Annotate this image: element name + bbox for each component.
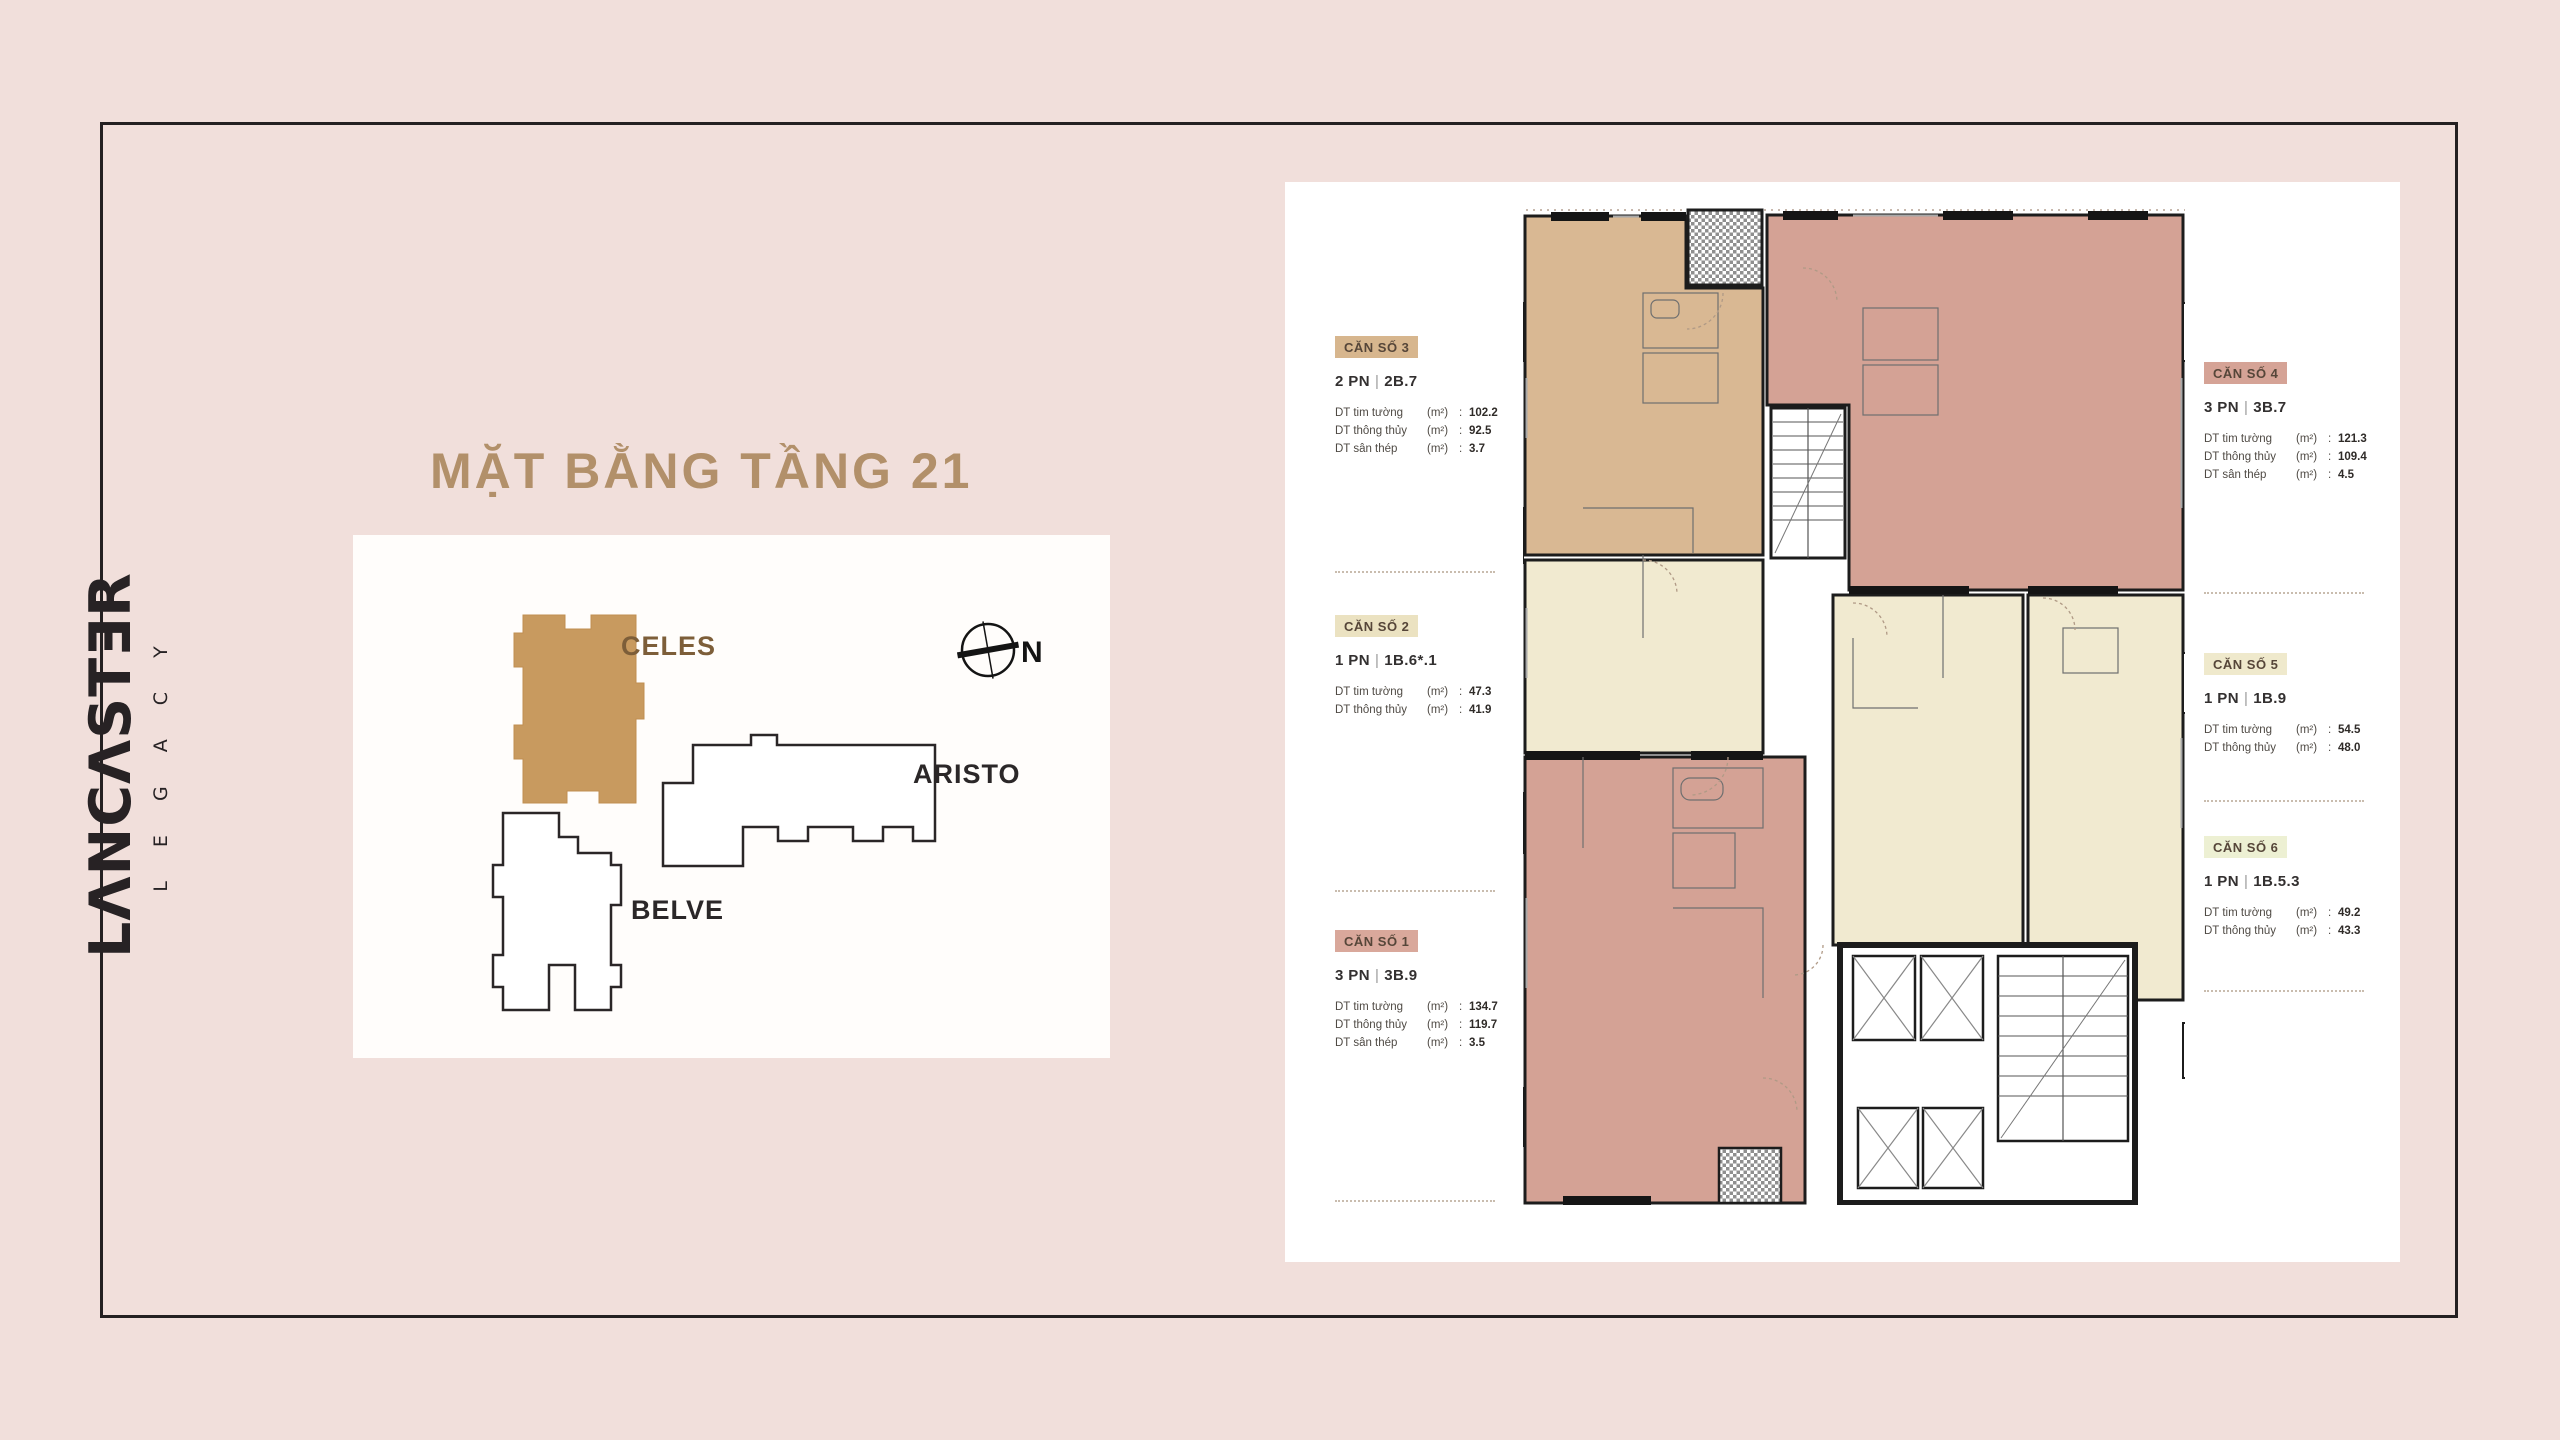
unit-chip: CĂN SỐ 5 (2204, 653, 2287, 675)
unit-code: 2B.7 (1384, 373, 1417, 390)
stat-row: DT thông thủy (m²) : 43.3 (2204, 922, 2389, 940)
stat-value: 119.7 (1469, 1016, 1497, 1034)
unit-type-line: 3 PN|3B.9 (1335, 967, 1520, 984)
stat-value: 102.2 (1469, 404, 1498, 422)
dotted-separator (1335, 890, 1495, 892)
dotted-separator (2204, 592, 2364, 594)
stat-value: 134.7 (1469, 998, 1498, 1016)
stat-name: DT tim tường (1335, 683, 1427, 701)
stat-colon: : (2328, 721, 2338, 739)
building-label-celes: CELES (621, 631, 716, 662)
unit-type-line: 1 PN|1B.9 (2204, 690, 2389, 707)
stat-unit: (m²) (2296, 430, 2328, 448)
stat-unit: (m²) (1427, 701, 1459, 719)
stat-row: DT thông thủy (m²) : 48.0 (2204, 739, 2389, 757)
stat-row: DT sân thép (m²) : 3.7 (1335, 440, 1520, 458)
unit-type-line: 2 PN|2B.7 (1335, 373, 1520, 390)
stat-colon: : (2328, 739, 2338, 757)
stat-value: 41.9 (1469, 701, 1491, 719)
unit-chip: CĂN SỐ 3 (1335, 336, 1418, 358)
unit-code: 1B.9 (2253, 690, 2286, 707)
unit-bedrooms: 2 PN (1335, 373, 1370, 390)
stat-row: DT sân thép (m²) : 3.5 (1335, 1034, 1520, 1052)
stat-colon: : (2328, 922, 2338, 940)
stat-unit: (m²) (1427, 1016, 1459, 1034)
site-plan-box: N CELES ARISTO BELVE (353, 535, 1110, 1058)
separator: | (2239, 399, 2253, 416)
stat-colon: : (2328, 904, 2338, 922)
stat-unit: (m²) (1427, 440, 1459, 458)
brand-logo: LΛNCΛSTƎR L E G A C Y (62, 500, 192, 970)
compass-north-label: N (1021, 636, 1043, 669)
stat-value: 54.5 (2338, 721, 2360, 739)
stat-name: DT sân thép (1335, 440, 1427, 458)
stat-name: DT thông thủy (2204, 922, 2296, 940)
stat-value: 43.3 (2338, 922, 2360, 940)
building-aristo-shape (663, 735, 935, 866)
stat-unit: (m²) (2296, 448, 2328, 466)
building-label-aristo: ARISTO (913, 759, 1021, 790)
site-plan-drawing: N (353, 535, 1110, 1058)
plan-unit-can-so-5 (1833, 595, 2023, 945)
lift-lobby-hatched-top (1688, 210, 1762, 285)
plan-unit-can-so-2 (1525, 560, 1763, 753)
unit-stats: DT tim tường (m²) : 134.7 DT thông thủy … (1335, 998, 1520, 1052)
stat-colon: : (2328, 466, 2338, 484)
stat-name: DT sân thép (1335, 1034, 1427, 1052)
stat-unit: (m²) (1427, 1034, 1459, 1052)
dotted-separator (1335, 1200, 1495, 1202)
dotted-separator (2204, 990, 2364, 992)
unit-info-can-so-2: CĂN SỐ 2 1 PN|1B.6*.1 DT tim tường (m²) … (1335, 615, 1520, 719)
stat-row: DT thông thủy (m²) : 92.5 (1335, 422, 1520, 440)
unit-type-line: 1 PN|1B.6*.1 (1335, 652, 1520, 669)
stat-value: 4.5 (2338, 466, 2354, 484)
stat-unit: (m²) (1427, 404, 1459, 422)
stat-name: DT tim tường (1335, 404, 1427, 422)
lift-lobby-hatched-bottom (1719, 1148, 1781, 1203)
stat-colon: : (2328, 430, 2338, 448)
unit-bedrooms: 3 PN (1335, 967, 1370, 984)
unit-stats: DT tim tường (m²) : 47.3 DT thông thủy (… (1335, 683, 1520, 719)
stat-row: DT thông thủy (m²) : 119.7 (1335, 1016, 1520, 1034)
stat-colon: : (1459, 1034, 1469, 1052)
stat-row: DT tim tường (m²) : 134.7 (1335, 998, 1520, 1016)
unit-chip: CĂN SỐ 2 (1335, 615, 1418, 637)
stat-name: DT tim tường (1335, 998, 1427, 1016)
brochure-page: LΛNCΛSTƎR L E G A C Y MẶT BẰNG TẦNG 21 N (0, 0, 2560, 1440)
stat-unit: (m²) (1427, 683, 1459, 701)
stat-value: 48.0 (2338, 739, 2360, 757)
stat-name: DT thông thủy (2204, 448, 2296, 466)
brand-name: LΛNCΛSTƎR (83, 572, 140, 958)
unit-info-can-so-6: CĂN SỐ 6 1 PN|1B.5.3 DT tim tường (m²) :… (2204, 836, 2389, 940)
unit-info-can-so-4: CĂN SỐ 4 3 PN|3B.7 DT tim tường (m²) : 1… (2204, 362, 2389, 484)
stat-colon: : (1459, 440, 1469, 458)
stat-row: DT tim tường (m²) : 54.5 (2204, 721, 2389, 739)
unit-code: 3B.9 (1384, 967, 1417, 984)
stat-value: 3.5 (1469, 1034, 1485, 1052)
unit-type-line: 1 PN|1B.5.3 (2204, 873, 2389, 890)
brand-logo-rotated: LΛNCΛSTƎR L E G A C Y (67, 555, 187, 975)
stat-value: 109.4 (2338, 448, 2367, 466)
unit-stats: DT tim tường (m²) : 49.2 DT thông thủy (… (2204, 904, 2389, 940)
stat-name: DT tim tường (2204, 430, 2296, 448)
stat-unit: (m²) (2296, 466, 2328, 484)
stat-row: DT tim tường (m²) : 47.3 (1335, 683, 1520, 701)
stat-name: DT thông thủy (1335, 422, 1427, 440)
unit-bedrooms: 1 PN (2204, 690, 2239, 707)
separator: | (1370, 373, 1384, 390)
stat-name: DT tim tường (2204, 721, 2296, 739)
stat-colon: : (1459, 683, 1469, 701)
stat-value: 121.3 (2338, 430, 2367, 448)
stat-value: 49.2 (2338, 904, 2360, 922)
page-title: MẶT BẰNG TẦNG 21 (430, 442, 972, 500)
stat-unit: (m²) (2296, 904, 2328, 922)
unit-info-can-so-1: CĂN SỐ 1 3 PN|3B.9 DT tim tường (m²) : 1… (1335, 930, 1520, 1052)
stat-row: DT thông thủy (m²) : 109.4 (2204, 448, 2389, 466)
building-label-belve: BELVE (631, 895, 724, 926)
stat-colon: : (2328, 448, 2338, 466)
unit-bedrooms: 1 PN (2204, 873, 2239, 890)
separator: | (2239, 690, 2253, 707)
stat-unit: (m²) (1427, 998, 1459, 1016)
dotted-separator (2204, 800, 2364, 802)
stat-unit: (m²) (1427, 422, 1459, 440)
dotted-separator (1335, 571, 1495, 573)
stat-value: 3.7 (1469, 440, 1485, 458)
service-core (1840, 945, 2135, 1203)
unit-stats: DT tim tường (m²) : 102.2 DT thông thủy … (1335, 404, 1520, 458)
separator: | (2239, 873, 2253, 890)
unit-stats: DT tim tường (m²) : 121.3 DT thông thủy … (2204, 430, 2389, 484)
unit-code: 1B.6*.1 (1384, 652, 1437, 669)
stat-name: DT thông thủy (1335, 1016, 1427, 1034)
unit-bedrooms: 3 PN (2204, 399, 2239, 416)
stair-core-top (1771, 408, 1845, 558)
unit-info-can-so-5: CĂN SỐ 5 1 PN|1B.9 DT tim tường (m²) : 5… (2204, 653, 2389, 757)
stat-name: DT tim tường (2204, 904, 2296, 922)
unit-bedrooms: 1 PN (1335, 652, 1370, 669)
stat-unit: (m²) (2296, 739, 2328, 757)
stat-row: DT sân thép (m²) : 4.5 (2204, 466, 2389, 484)
unit-code: 1B.5.3 (2253, 873, 2300, 890)
unit-stats: DT tim tường (m²) : 54.5 DT thông thủy (… (2204, 721, 2389, 757)
stat-colon: : (1459, 404, 1469, 422)
stat-colon: : (1459, 422, 1469, 440)
floor-plan-drawing (1523, 208, 2185, 1205)
stat-colon: : (1459, 998, 1469, 1016)
brand-subname: L E G A C Y (150, 632, 172, 897)
stat-colon: : (1459, 701, 1469, 719)
plan-unit-can-so-6 (2028, 595, 2183, 1000)
stat-row: DT thông thủy (m²) : 41.9 (1335, 701, 1520, 719)
stat-value: 92.5 (1469, 422, 1491, 440)
stat-unit: (m²) (2296, 922, 2328, 940)
unit-chip: CĂN SỐ 6 (2204, 836, 2287, 858)
unit-chip: CĂN SỐ 4 (2204, 362, 2287, 384)
stat-name: DT thông thủy (2204, 739, 2296, 757)
separator: | (1370, 652, 1384, 669)
unit-type-line: 3 PN|3B.7 (2204, 399, 2389, 416)
separator: | (1370, 967, 1384, 984)
stat-row: DT tim tường (m²) : 49.2 (2204, 904, 2389, 922)
building-belve-shape (493, 813, 621, 1010)
stat-row: DT tim tường (m²) : 102.2 (1335, 404, 1520, 422)
stat-name: DT thông thủy (1335, 701, 1427, 719)
unit-code: 3B.7 (2253, 399, 2286, 416)
compass-icon: N (952, 616, 1042, 684)
stat-colon: : (1459, 1016, 1469, 1034)
stat-row: DT tim tường (m²) : 121.3 (2204, 430, 2389, 448)
stat-name: DT sân thép (2204, 466, 2296, 484)
stat-value: 47.3 (1469, 683, 1491, 701)
unit-chip: CĂN SỐ 1 (1335, 930, 1418, 952)
unit-info-can-so-3: CĂN SỐ 3 2 PN|2B.7 DT tim tường (m²) : 1… (1335, 336, 1520, 458)
stat-unit: (m²) (2296, 721, 2328, 739)
